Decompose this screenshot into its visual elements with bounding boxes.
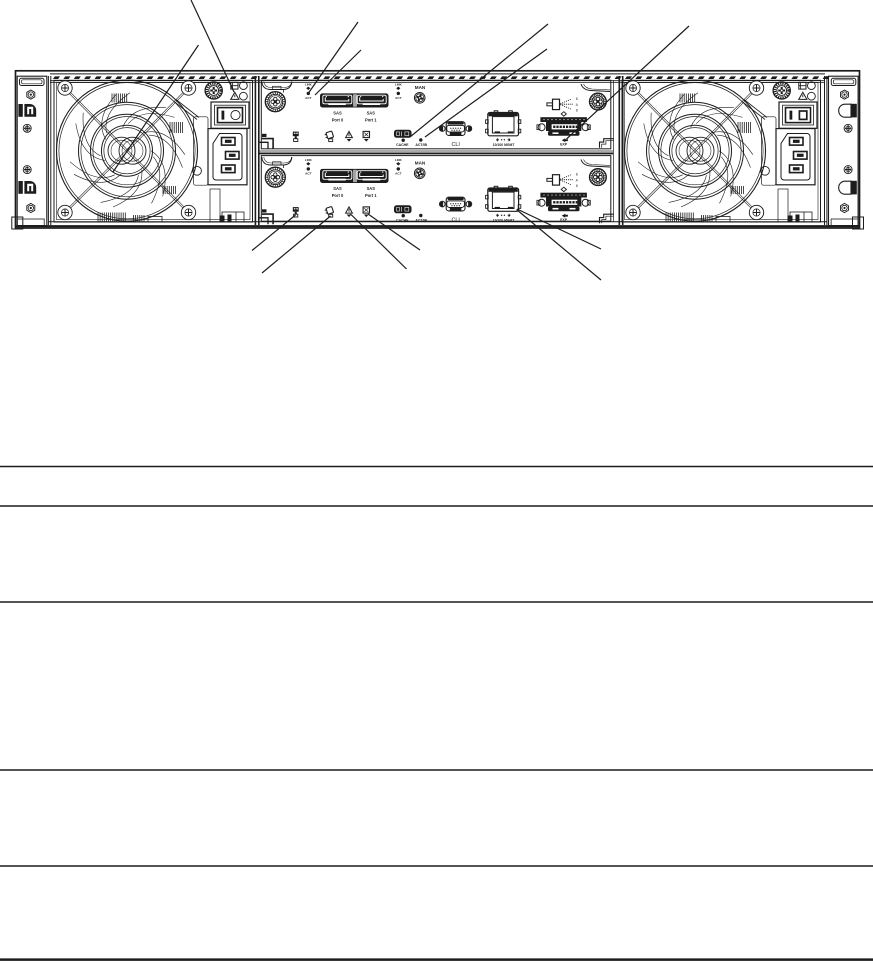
- svg-text:MAN: MAN: [415, 85, 426, 90]
- svg-text:LINK: LINK: [395, 83, 403, 87]
- svg-text:ACT: ACT: [395, 96, 401, 100]
- svg-text:8: 8: [576, 97, 578, 101]
- svg-text:Port 0: Port 0: [332, 117, 344, 122]
- svg-text:CACHE: CACHE: [396, 143, 409, 147]
- svg-text:ACT/IB: ACT/IB: [415, 143, 427, 147]
- svg-text:SAS: SAS: [333, 111, 342, 116]
- svg-text:LINK: LINK: [305, 83, 313, 87]
- svg-text:SAS: SAS: [367, 111, 376, 116]
- svg-text:ACT: ACT: [305, 96, 311, 100]
- svg-text:8: 8: [576, 109, 578, 113]
- svg-text:EXP: EXP: [560, 142, 568, 146]
- svg-text:10/100 MGMT: 10/100 MGMT: [493, 143, 516, 147]
- svg-text:CLI: CLI: [452, 142, 460, 148]
- svg-text:Port 1: Port 1: [365, 117, 377, 122]
